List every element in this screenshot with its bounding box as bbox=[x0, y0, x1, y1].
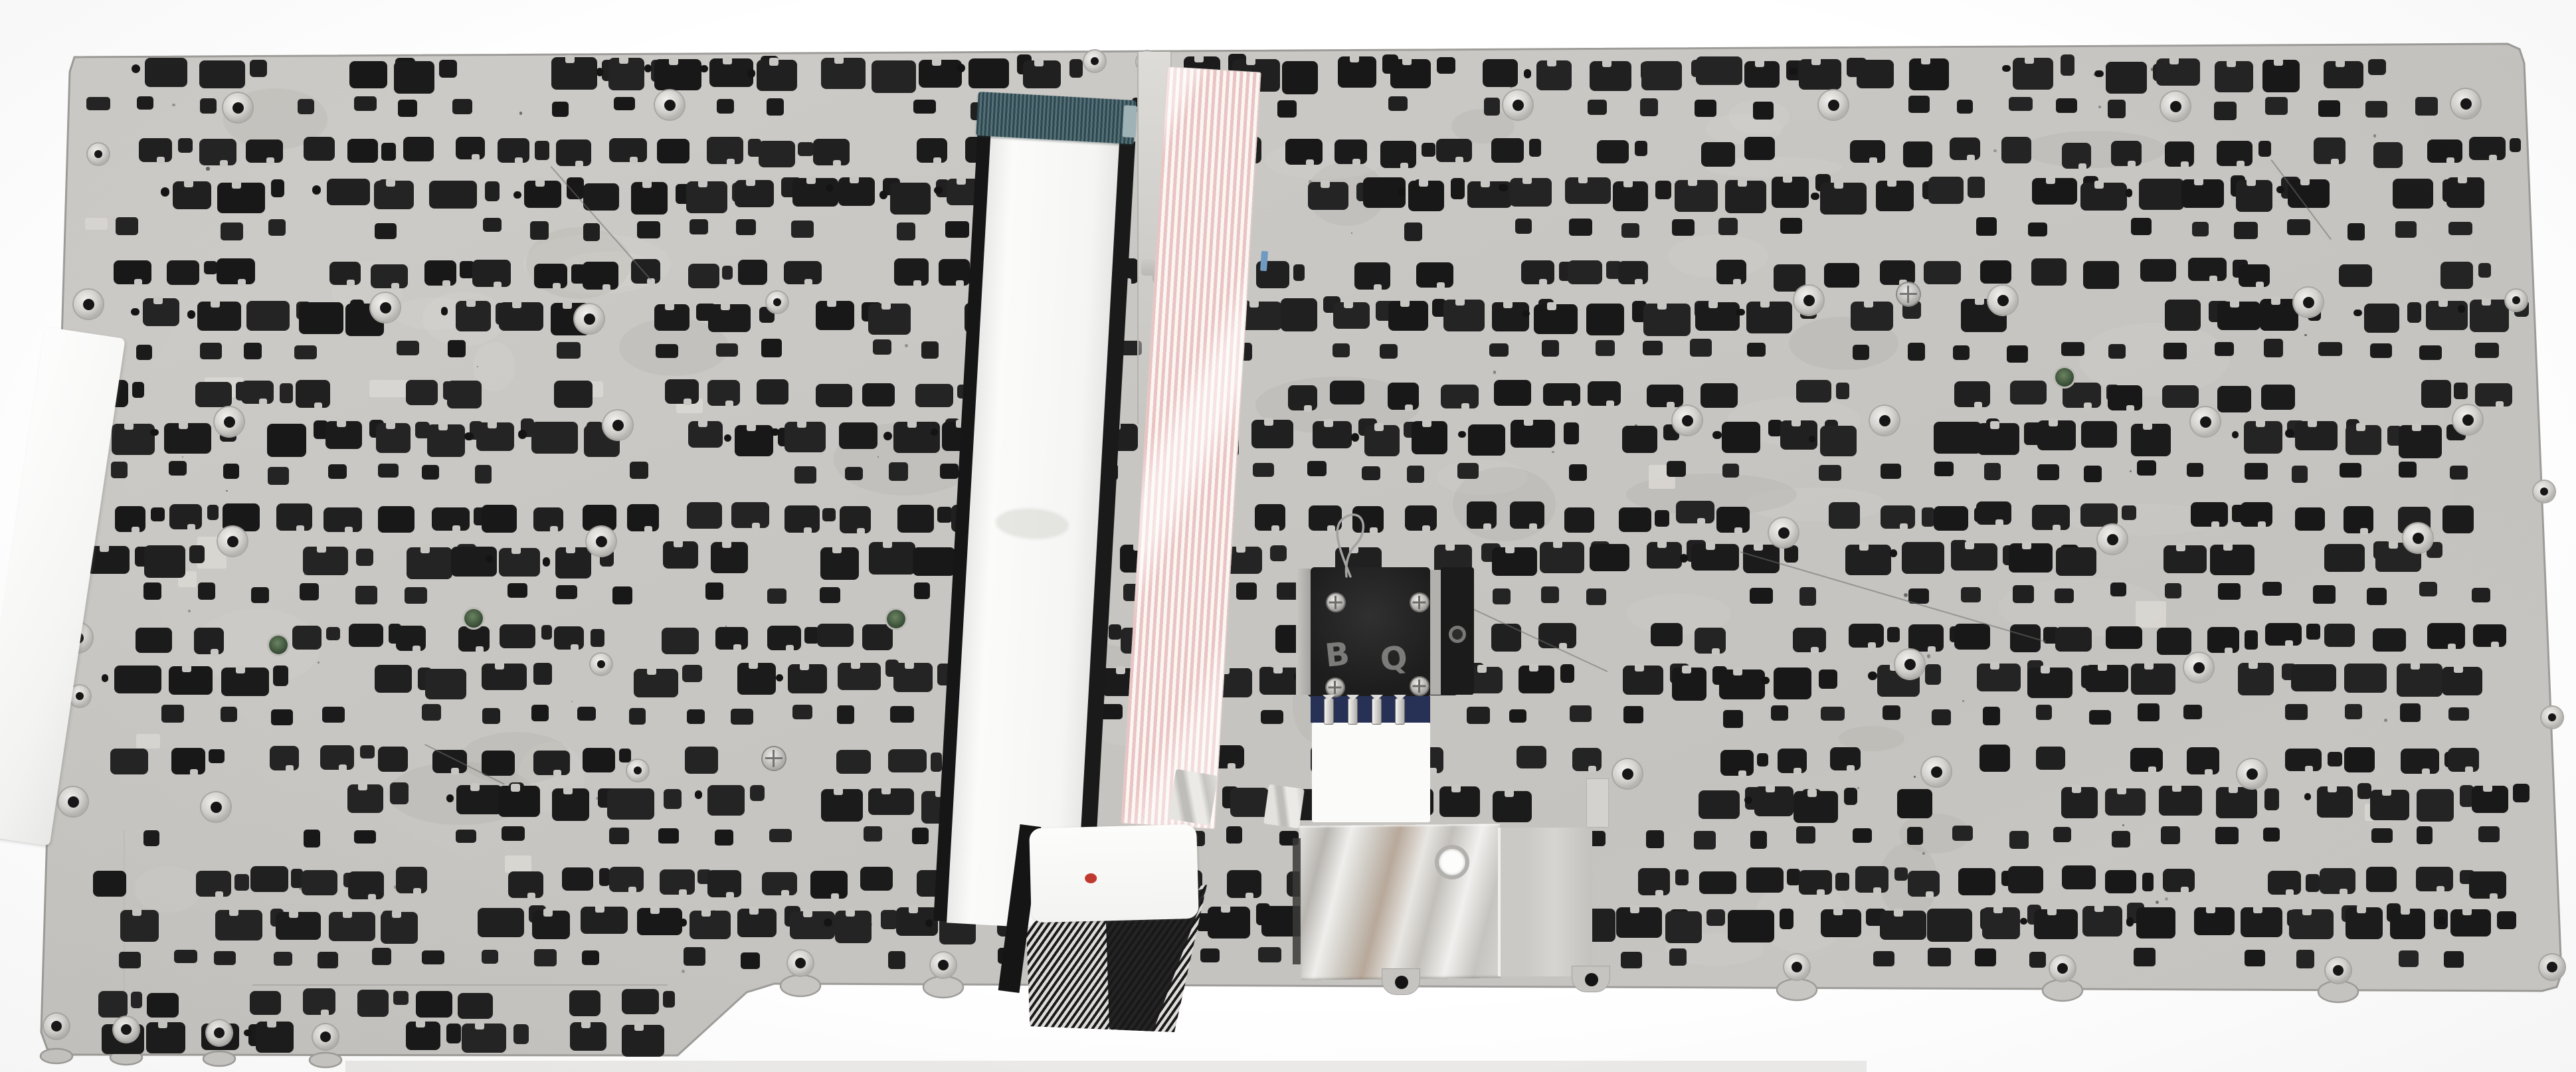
connector-side-block bbox=[1441, 567, 1474, 695]
connector-screw bbox=[1327, 594, 1344, 611]
ffc-smudge bbox=[995, 506, 1069, 541]
connector-screw bbox=[1411, 594, 1428, 611]
connector-screw bbox=[1411, 677, 1428, 695]
scratch-line bbox=[424, 744, 505, 784]
scratch-line bbox=[551, 166, 651, 280]
red-dot-mark bbox=[1085, 873, 1097, 883]
connector-screw bbox=[1327, 679, 1344, 696]
metal-bracket bbox=[1299, 824, 1501, 980]
ffc-teal-cap bbox=[1123, 105, 1138, 137]
connector-letter-b: B bbox=[1324, 638, 1351, 672]
keyboard-backplate-photo: B Q bbox=[0, 0, 2576, 1072]
green-through-hole bbox=[269, 636, 288, 654]
metal-bracket-right-panel bbox=[1498, 828, 1592, 976]
connector-pin bbox=[1396, 699, 1404, 724]
bracket-ear bbox=[1572, 966, 1610, 992]
connector-white-pad bbox=[1312, 723, 1430, 822]
green-through-hole bbox=[2055, 368, 2074, 387]
bracket-top-tab bbox=[1586, 778, 1609, 828]
table-shadow-strip bbox=[345, 1061, 1867, 1072]
green-through-hole bbox=[887, 610, 905, 628]
connector-pin bbox=[1348, 699, 1357, 724]
bracket-shadow-band bbox=[1293, 838, 1301, 964]
connector-rail-right bbox=[1430, 570, 1441, 695]
ear-hole bbox=[1395, 976, 1408, 989]
scratch-line bbox=[2271, 159, 2332, 240]
crumpled-foil bbox=[1263, 784, 1305, 829]
connector-rail-left bbox=[1296, 569, 1311, 695]
bracket-ear bbox=[1382, 968, 1420, 995]
blue-mark bbox=[1260, 251, 1268, 272]
holes-and-scratches bbox=[0, 0, 2576, 1072]
connector-pin bbox=[1325, 699, 1333, 724]
ffc-bottom-stiffener bbox=[1029, 824, 1199, 923]
ffc-teal-contact-end bbox=[976, 92, 1136, 144]
ear-hole bbox=[1585, 973, 1598, 986]
ribbon-foil-end bbox=[1168, 769, 1218, 826]
thin-wire-loop bbox=[1305, 493, 1412, 579]
connector-letter-q: Q bbox=[1379, 642, 1410, 676]
bracket-hole bbox=[1435, 845, 1469, 879]
bq-connector-body bbox=[1311, 567, 1430, 697]
scratch-line bbox=[1740, 551, 2046, 642]
green-through-hole bbox=[464, 609, 483, 628]
side-block-hole bbox=[1449, 626, 1466, 643]
connector-pin bbox=[1372, 699, 1381, 724]
